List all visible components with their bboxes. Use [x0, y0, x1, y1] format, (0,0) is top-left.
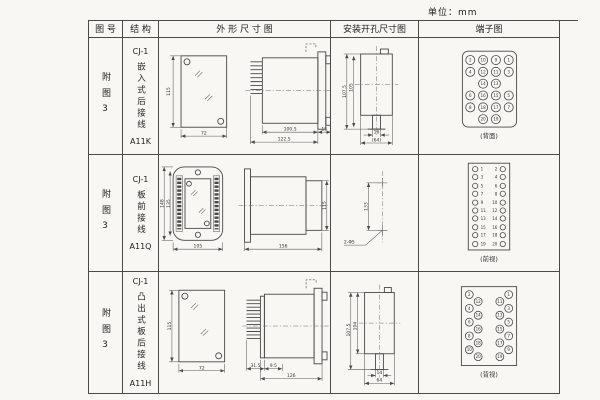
dim-plate-width: 105	[194, 244, 203, 250]
dim-cutout-width: 64	[377, 378, 383, 384]
glass-hatch-icon	[201, 329, 208, 335]
svg-text:10: 10	[467, 347, 473, 352]
structure-text-row2: 板前接线	[135, 190, 147, 236]
terminal-pins	[246, 300, 260, 338]
header-structure: 结 构	[122, 20, 158, 38]
svg-text:18: 18	[492, 233, 498, 238]
svg-text:3: 3	[481, 175, 484, 180]
outline-drawing-row1: 115 72	[158, 38, 330, 155]
svg-text:20: 20	[481, 117, 487, 122]
svg-text:11: 11	[497, 299, 503, 304]
glass-hatch-icon	[191, 190, 198, 196]
svg-text:1: 1	[507, 292, 510, 297]
header-mounting-dims: 安装开孔尺寸图	[330, 20, 418, 38]
figure-no-row1: 附图3	[88, 38, 122, 155]
hole-cross	[377, 178, 387, 235]
svg-text:9: 9	[481, 200, 484, 205]
dim-cutout-width: (64)	[372, 137, 382, 143]
outline-svg-a11q: 148 135 105 115	[159, 155, 330, 271]
terminal-drawing-row1: 2109141211314136161558181772019 (背面)	[418, 38, 560, 155]
svg-text:4: 4	[469, 69, 472, 74]
terminal-pin-grid: 2109141211314136161558181772019	[466, 55, 514, 123]
dim-depth: 156	[279, 244, 288, 250]
svg-text:8: 8	[495, 191, 498, 196]
drawing-table: 图 号 结 构 外 形 尺 寸 图 安装开孔尺寸图 端子图 附图3 CJ-1 嵌…	[88, 20, 560, 394]
svg-text:1: 1	[507, 58, 510, 63]
dim-cutout-inner-height: 104	[353, 322, 359, 331]
header-terminal-diagram: 端子图	[418, 20, 560, 38]
svg-text:16: 16	[481, 93, 487, 98]
manual-page: 单位：mm 图 号 结 构 外 形 尺 寸 图 安装开孔尺寸图 端子图 附图3 …	[0, 0, 600, 400]
header-figure-no: 图 号	[88, 20, 122, 38]
structure-row1: CJ-1 嵌入式后接线 A11K	[122, 38, 158, 155]
svg-text:20: 20	[476, 354, 482, 359]
svg-text:18: 18	[481, 105, 487, 110]
unit-label: 单位：mm	[428, 5, 478, 18]
mounting-svg-a11k: 107.5 105 16 (64)	[331, 38, 418, 154]
terminal-svg-a11q: 1234567891011121314151617181920 (前视)	[419, 155, 559, 271]
dim-cutout-outer-height: 107.5	[346, 323, 352, 336]
dim-slot-width: 16	[374, 130, 380, 136]
svg-text:15: 15	[493, 93, 499, 98]
side-view: 31.5 9.5 126	[243, 280, 330, 381]
svg-text:12: 12	[476, 299, 482, 304]
front-view: 115 72	[166, 56, 227, 138]
svg-text:12: 12	[492, 208, 498, 213]
svg-text:7: 7	[507, 333, 510, 338]
dim-flange: 15	[321, 127, 327, 133]
svg-text:3: 3	[507, 306, 510, 311]
code-row2: A11Q	[130, 242, 152, 251]
dim-cutout-inner-height: 105	[349, 83, 355, 92]
glass-hatch-icon	[199, 208, 206, 214]
svg-text:11: 11	[481, 208, 487, 213]
glass-hatch-icon	[191, 303, 198, 309]
mounting-svg-a11h: 107.5 104 14 64	[331, 272, 418, 393]
dim-plate-inner-height: 135	[166, 199, 172, 208]
structure-text-row3: 凸出式板后接线	[135, 292, 147, 373]
svg-text:8: 8	[469, 105, 472, 110]
svg-text:10: 10	[492, 200, 498, 205]
view-label: (前视)	[480, 254, 498, 263]
outline-drawing-row3: 115 72	[158, 272, 330, 394]
dim-front-width: 72	[199, 365, 205, 371]
model-row2: CJ-1	[133, 175, 149, 184]
front-view: 115 72	[167, 290, 225, 373]
svg-text:19: 19	[497, 354, 503, 359]
svg-text:5: 5	[481, 183, 484, 188]
dim-slot-width: 14	[377, 370, 383, 376]
terminal-pins	[250, 62, 262, 94]
dim-hole-distance: 133	[364, 202, 370, 211]
svg-text:17: 17	[497, 340, 503, 345]
dim-gap: 9.5	[270, 363, 277, 369]
terminal-svg-a11h: 2468101214161820111315171913579 (背视)	[419, 272, 559, 393]
terminal-pin-columns	[473, 166, 506, 246]
front-view: 148 135 105	[160, 167, 223, 251]
svg-text:1: 1	[481, 167, 484, 172]
svg-text:14: 14	[492, 216, 498, 221]
outline-svg-a11h: 115 72	[159, 272, 330, 393]
svg-text:14: 14	[481, 81, 487, 86]
svg-text:17: 17	[493, 105, 499, 110]
dim-body-length: 100.5	[284, 127, 297, 133]
svg-text:13: 13	[497, 313, 503, 318]
svg-text:11: 11	[493, 69, 499, 74]
code-row3: A11H	[130, 379, 152, 388]
terminal-drawing-row3: 2468101214161820111315171913579 (背视)	[418, 272, 560, 394]
dim-cutout-outer-height: 107.5	[342, 85, 348, 98]
mounting-drawing-row2: 133 2-Φ5	[330, 155, 418, 272]
view-label: (背面)	[480, 131, 498, 140]
dim-front-height: 115	[167, 322, 173, 331]
svg-text:10: 10	[481, 58, 487, 63]
model-row3: CJ-1	[133, 277, 149, 286]
mounting-drawing-row3: 107.5 104 14 64	[330, 272, 418, 394]
terminal-svg-a11k: 2109141211314136161558181772019 (背面)	[419, 38, 559, 154]
svg-text:19: 19	[493, 117, 499, 122]
dim-hole-note: 2-Φ5	[344, 239, 355, 245]
svg-text:9: 9	[495, 58, 498, 63]
outline-drawing-row2: 148 135 105 115	[158, 155, 330, 272]
svg-text:15: 15	[481, 225, 487, 230]
outline-svg-a11k: 115 72	[159, 38, 330, 154]
svg-text:14: 14	[476, 313, 482, 318]
mounting-drawing-row1: 107.5 105 16 (64)	[330, 38, 418, 155]
svg-text:17: 17	[481, 233, 487, 238]
structure-text-row1: 嵌入式后接线	[135, 62, 147, 131]
hook-dashed	[306, 44, 316, 52]
mounting-svg-a11q: 133 2-Φ5	[331, 155, 418, 271]
dim-body-length: 126	[287, 373, 296, 379]
svg-text:6: 6	[469, 93, 472, 98]
svg-text:2: 2	[469, 58, 472, 63]
svg-text:13: 13	[481, 216, 487, 221]
dim-front-width: 72	[201, 131, 207, 137]
dim-total-length: 122.5	[278, 137, 291, 143]
figure-no-row3: 附图3	[88, 272, 122, 394]
svg-text:4: 4	[495, 175, 498, 180]
svg-text:15: 15	[497, 327, 503, 332]
svg-text:18: 18	[476, 340, 482, 345]
svg-text:2: 2	[468, 292, 471, 297]
svg-text:5: 5	[507, 320, 510, 325]
svg-text:3: 3	[507, 69, 510, 74]
hook-dashed	[306, 280, 316, 288]
svg-text:4: 4	[468, 306, 471, 311]
view-label: (背视)	[480, 369, 498, 378]
terminal-stud-grid: 2468101214161820111315171913579	[465, 291, 512, 361]
code-row1: A11K	[130, 137, 151, 146]
figure-no-row2: 附图3	[88, 155, 122, 272]
structure-row2: CJ-1 板前接线 A11Q	[122, 155, 158, 272]
dim-side-height: 115	[322, 201, 328, 210]
svg-text:2: 2	[495, 167, 498, 172]
terminal-numbers: 1234567891011121314151617181920	[481, 167, 498, 247]
svg-text:12: 12	[481, 69, 487, 74]
svg-text:16: 16	[476, 327, 482, 332]
svg-text:8: 8	[468, 333, 471, 338]
svg-text:16: 16	[492, 225, 498, 230]
dim-front-height: 115	[166, 87, 172, 96]
svg-text:7: 7	[507, 105, 510, 110]
header-outline-dims: 外 形 尺 寸 图	[158, 20, 330, 38]
svg-text:9: 9	[507, 347, 510, 352]
glass-hatch-icon	[195, 71, 202, 77]
svg-text:13: 13	[493, 81, 499, 86]
glass-hatch-icon	[205, 95, 212, 101]
side-view: 115 156	[239, 169, 330, 251]
svg-text:6: 6	[468, 320, 471, 325]
dim-plate-outer-height: 148	[160, 199, 166, 208]
svg-text:20: 20	[492, 242, 498, 247]
svg-text:5: 5	[507, 93, 510, 98]
model-row1: CJ-1	[133, 47, 149, 56]
side-view: 100.5 15 122.5	[245, 44, 330, 144]
terminal-drawing-row2: 1234567891011121314151617181920 (前视)	[418, 155, 560, 272]
svg-text:6: 6	[495, 183, 498, 188]
svg-text:19: 19	[481, 242, 487, 247]
svg-text:7: 7	[481, 191, 484, 196]
structure-row3: CJ-1 凸出式板后接线 A11H	[122, 272, 158, 394]
dim-pins-length: 31.5	[250, 363, 260, 369]
